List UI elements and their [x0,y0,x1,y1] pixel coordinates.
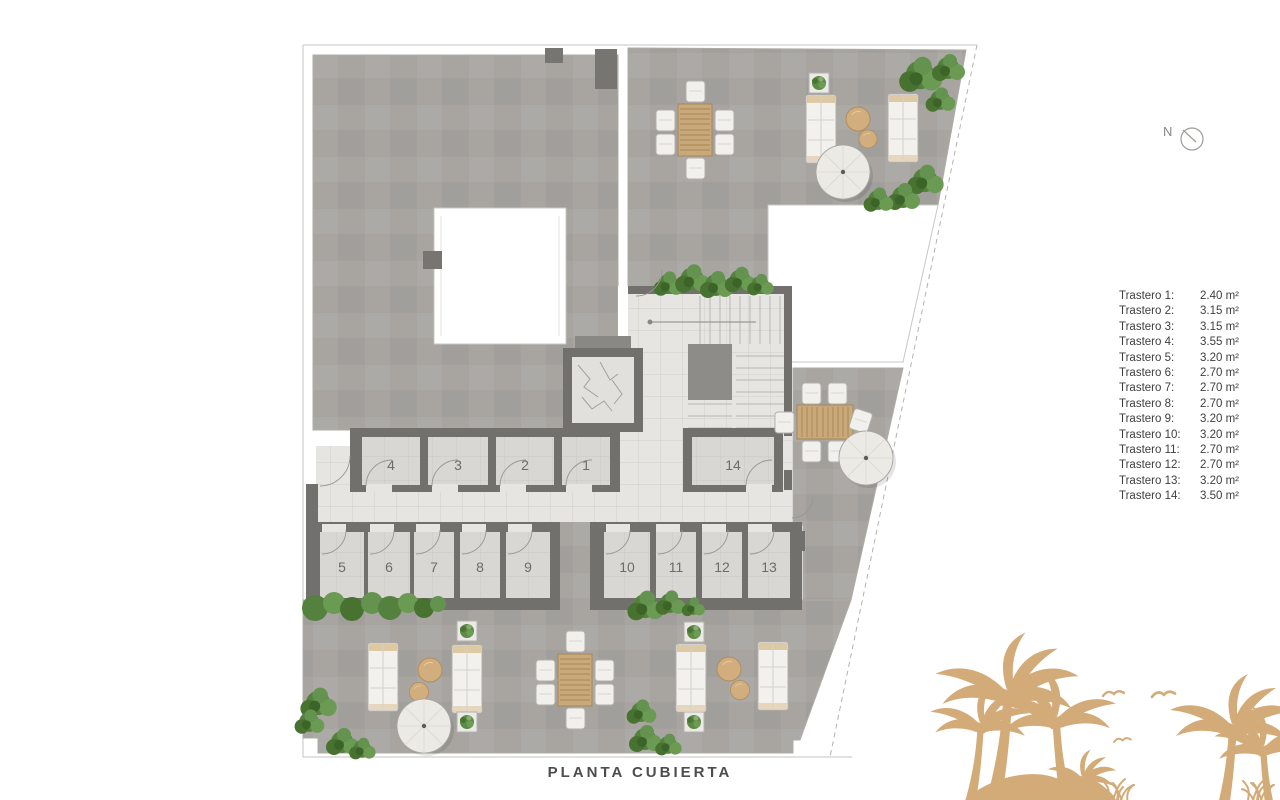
legend-row: Trastero 9:3.20 m² [1119,412,1239,427]
page-title: PLANTA CUBIERTA [548,764,733,781]
legend-room-area: 3.15 m² [1200,304,1239,319]
legend-row: Trastero 13:3.20 m² [1119,474,1239,489]
legend-room-name: Trastero 2: [1119,304,1200,319]
legend-room-name: Trastero 8: [1119,397,1200,412]
legend-room-area: 3.20 m² [1200,474,1239,489]
floor-plan-svg: 4 3 2 1 14 5 6 7 8 9 10 11 12 13 [0,0,1280,800]
legend-row: Trastero 3:3.15 m² [1119,320,1239,335]
sun-lounger [368,643,398,711]
planter [684,712,704,732]
legend-row: Trastero 11:2.70 m² [1119,443,1239,458]
planter [457,621,477,641]
legend-room-area: 2.70 m² [1200,458,1239,473]
legend-row: Trastero 5:3.20 m² [1119,351,1239,366]
side-table [717,657,741,681]
room-number-8: 8 [476,559,484,575]
room-number-3: 3 [454,457,462,473]
floor-plan-page: 4 3 2 1 14 5 6 7 8 9 10 11 12 13 [0,0,1280,800]
room-number-10: 10 [619,559,635,575]
north-label: N [1163,124,1172,139]
legend-room-name: Trastero 12: [1119,458,1200,473]
legend-room-name: Trastero 4: [1119,335,1200,350]
legend-room-name: Trastero 10: [1119,428,1200,443]
legend-row: Trastero 4:3.55 m² [1119,335,1239,350]
legend-room-name: Trastero 6: [1119,366,1200,381]
legend-room-area: 3.50 m² [1200,489,1239,504]
chimney [595,49,617,89]
legend-room-area: 3.20 m² [1200,351,1239,366]
legend-room-name: Trastero 13: [1119,474,1200,489]
legend-row: Trastero 6:2.70 m² [1119,366,1239,381]
skylight-vent [423,251,442,269]
legend-room-area: 3.20 m² [1200,412,1239,427]
sun-lounger [452,645,482,713]
legend-room-area: 2.40 m² [1200,289,1239,304]
legend-room-area: 2.70 m² [1200,381,1239,396]
side-table [418,658,442,682]
room-number-2: 2 [521,457,529,473]
wall-pillar [793,531,805,551]
room-number-14: 14 [725,457,741,473]
room-number-1: 1 [582,457,590,473]
planter [809,73,829,93]
side-table [859,130,877,148]
legend-room-name: Trastero 7: [1119,381,1200,396]
legend-row: Trastero 10:3.20 m² [1119,428,1239,443]
sun-lounger [758,642,788,710]
legend-row: Trastero 2:3.15 m² [1119,304,1239,319]
room-number-13: 13 [761,559,777,575]
room-number-6: 6 [385,559,393,575]
room-number-7: 7 [430,559,438,575]
room-number-5: 5 [338,559,346,575]
legend-row: Trastero 12:2.70 m² [1119,458,1239,473]
legend-room-name: Trastero 14: [1119,489,1200,504]
room-number-12: 12 [714,559,730,575]
legend-room-area: 2.70 m² [1200,443,1239,458]
sun-lounger [676,644,706,712]
legend-room-area: 2.70 m² [1200,397,1239,412]
skylight [434,208,566,344]
legend-room-name: Trastero 3: [1119,320,1200,335]
room-number-9: 9 [524,559,532,575]
legend-room-area: 2.70 m² [1200,366,1239,381]
room-number-11: 11 [669,559,684,575]
elevator [563,336,643,432]
legend-row: Trastero 1:2.40 m² [1119,289,1239,304]
legend-room-name: Trastero 1: [1119,289,1200,304]
sun-lounger [888,94,918,162]
legend-row: Trastero 7:2.70 m² [1119,381,1239,396]
legend-room-area: 3.20 m² [1200,428,1239,443]
room-number-4: 4 [387,457,395,473]
roof-vent [545,48,563,63]
side-table [730,680,749,699]
passage-to-terrace [560,522,592,610]
planter [457,712,477,732]
legend-room-name: Trastero 11: [1119,443,1200,458]
legend-row: Trastero 8:2.70 m² [1119,397,1239,412]
legend-room-area: 3.55 m² [1200,335,1239,350]
legend-room-area: 3.15 m² [1200,320,1239,335]
storage-legend: Trastero 1:2.40 m² Trastero 2:3.15 m² Tr… [1119,289,1239,505]
side-table [846,107,870,131]
planter [684,622,704,642]
legend-row: Trastero 14:3.50 m² [1119,489,1239,504]
stair-landing [688,344,732,400]
legend-room-name: Trastero 9: [1119,412,1200,427]
legend-room-name: Trastero 5: [1119,351,1200,366]
